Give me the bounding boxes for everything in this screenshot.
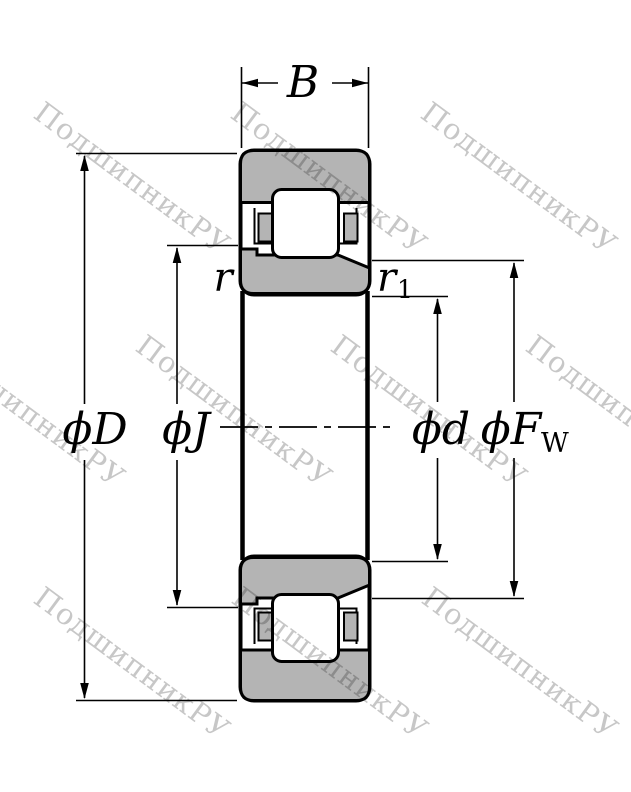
arrowhead-d-bottom xyxy=(433,544,442,560)
dim-label-chamfer-inner-subscript: 1 xyxy=(397,275,413,304)
arrowhead-Fw-top xyxy=(510,262,519,278)
dim-label-outer-diameter: ϕD xyxy=(62,404,127,455)
arrowhead-D-top xyxy=(80,155,89,171)
dim-label-rib-diameter: ϕJ xyxy=(162,404,212,455)
cage-bar-lower-left xyxy=(259,613,273,641)
dim-label-bore-diameter: ϕd xyxy=(412,404,470,455)
cage-bar-upper-left xyxy=(259,214,273,242)
dim-label-raceway-subscript: W xyxy=(541,428,569,459)
dim-label-width: B xyxy=(286,57,319,108)
cage-bar-upper-right xyxy=(344,214,358,242)
upper-section xyxy=(241,151,370,295)
arrowhead-J-bottom xyxy=(173,590,182,606)
lower-section xyxy=(241,557,370,701)
dim-label-chamfer-inner: r xyxy=(377,255,399,301)
bearing-drawing-page: B ϕD ϕJ ϕd ϕF W r r 1 ПодшипникРУ Подшип… xyxy=(0,0,631,792)
arrowhead-Fw-bottom xyxy=(510,581,519,597)
roller-upper xyxy=(273,190,339,258)
arrowhead-B-left xyxy=(242,79,258,87)
bearing-diagram: B ϕD ϕJ ϕd ϕF W r r 1 xyxy=(0,0,631,792)
cage-bar-lower-right xyxy=(344,613,358,641)
arrowhead-J-top xyxy=(173,247,182,263)
arrowhead-D-bottom xyxy=(80,683,89,699)
roller-lower xyxy=(273,595,339,662)
dim-label-raceway-diameter: ϕF xyxy=(481,404,543,455)
arrowhead-d-top xyxy=(433,298,442,314)
dim-label-chamfer-outer: r xyxy=(213,255,235,301)
arrowhead-B-right xyxy=(352,79,368,87)
